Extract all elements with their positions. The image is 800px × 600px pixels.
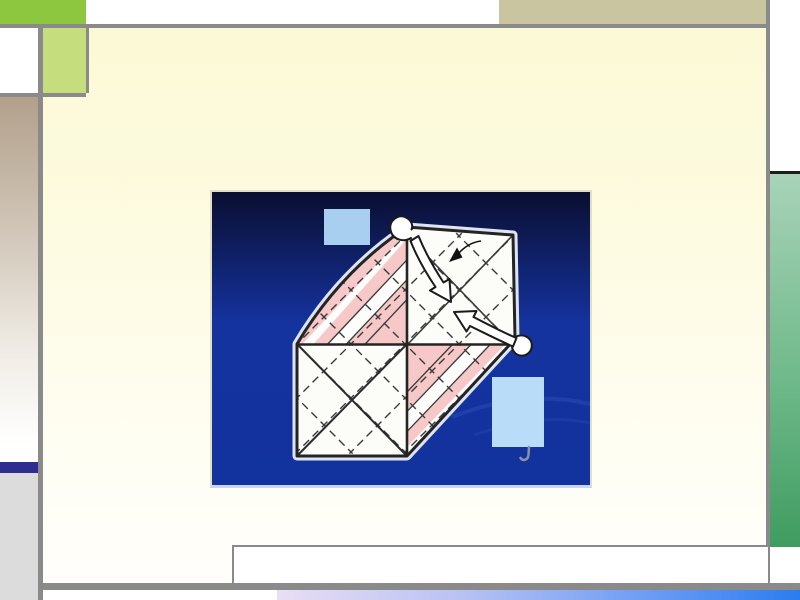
- callout-box-top: [324, 209, 370, 245]
- left-rail-white: [0, 28, 38, 93]
- bottom-gradient-bar: [277, 590, 800, 600]
- accent-green-square: [43, 28, 89, 93]
- left-rail-navy: [0, 462, 38, 473]
- top-accent-olive: [499, 0, 766, 24]
- frame-line-vertical-right: [766, 0, 770, 590]
- left-rail-tan: [0, 97, 38, 462]
- callout-box-bottom: [492, 377, 544, 447]
- right-rail-green: [770, 174, 800, 547]
- left-rail-gray: [0, 473, 38, 600]
- origami-diagram-image[interactable]: [210, 190, 592, 488]
- frame-line-left-cap: [0, 93, 86, 97]
- frame-line-vertical-left: [38, 26, 43, 600]
- slide-root[interactable]: [0, 0, 800, 600]
- frame-line-bottom: [38, 583, 800, 590]
- top-accent-green: [0, 0, 86, 26]
